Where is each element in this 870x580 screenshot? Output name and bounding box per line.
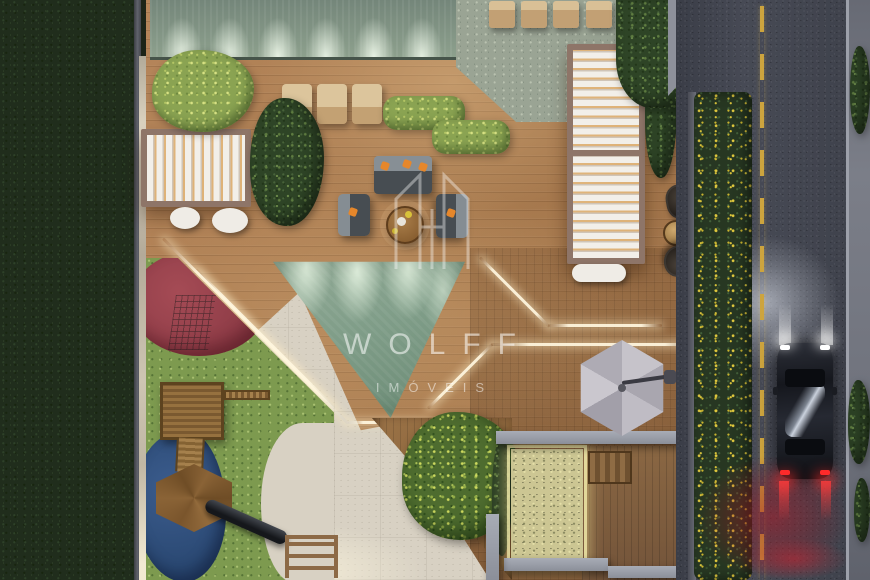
car-taillight-right <box>820 470 830 475</box>
car <box>777 343 833 479</box>
sidewalk-bush-2 <box>848 380 870 464</box>
car-taillight-left <box>780 470 790 475</box>
monkey-bars <box>224 390 270 400</box>
table-plate <box>397 217 406 226</box>
planter-row-2 <box>432 120 510 154</box>
privacy-wall-bottom-a <box>504 558 608 571</box>
pergola-long-divider <box>567 150 645 156</box>
taillight-road-glow-2 <box>740 538 848 580</box>
car-headlight-left <box>780 345 790 350</box>
climbing-net <box>168 295 216 350</box>
sun-lounger-3 <box>352 84 382 124</box>
car-rear-window <box>785 439 825 455</box>
privacy-wall-top <box>496 431 704 444</box>
led-seam-d <box>548 324 662 327</box>
patio-lounger-2 <box>521 1 547 28</box>
headlight-beam-right <box>821 297 833 345</box>
sun-lounger-2 <box>317 84 347 124</box>
render-canvas: WOLFF IMÓVEIS <box>0 0 870 580</box>
pouf-3 <box>572 264 626 282</box>
play-tower <box>160 382 224 440</box>
ladder-frame <box>285 535 338 578</box>
car-headlight-right <box>820 345 830 350</box>
car-mirror-right <box>832 387 837 395</box>
car-mirror-left <box>773 387 778 395</box>
shrub-cluster <box>250 98 324 226</box>
pouf-1 <box>170 207 200 229</box>
sidewalk-bush-3 <box>854 478 870 542</box>
privacy-wall-left <box>486 514 499 580</box>
spa-stone-pad <box>511 449 583 563</box>
table-flowers-2 <box>392 228 398 234</box>
taillight-streak-right <box>821 481 831 525</box>
timber-bench <box>588 451 632 484</box>
parasol-base <box>664 370 676 384</box>
car-windshield <box>785 369 825 387</box>
car-roof-shine <box>785 383 825 437</box>
taillight-streak-left <box>779 481 789 525</box>
patio-lounger-1 <box>489 1 515 28</box>
patio-lounger-4 <box>586 1 612 28</box>
planter-top-left <box>152 50 254 132</box>
headlight-beam-left <box>779 297 791 345</box>
neighbor-lawn <box>0 0 136 580</box>
pergola-square <box>141 129 251 207</box>
table-flowers <box>405 211 412 218</box>
led-seam-e <box>491 343 703 346</box>
pouf-2 <box>212 208 248 233</box>
parasol-hub <box>618 384 626 392</box>
patio-lounger-3 <box>553 1 579 28</box>
sidewalk-bush-1 <box>850 46 870 134</box>
